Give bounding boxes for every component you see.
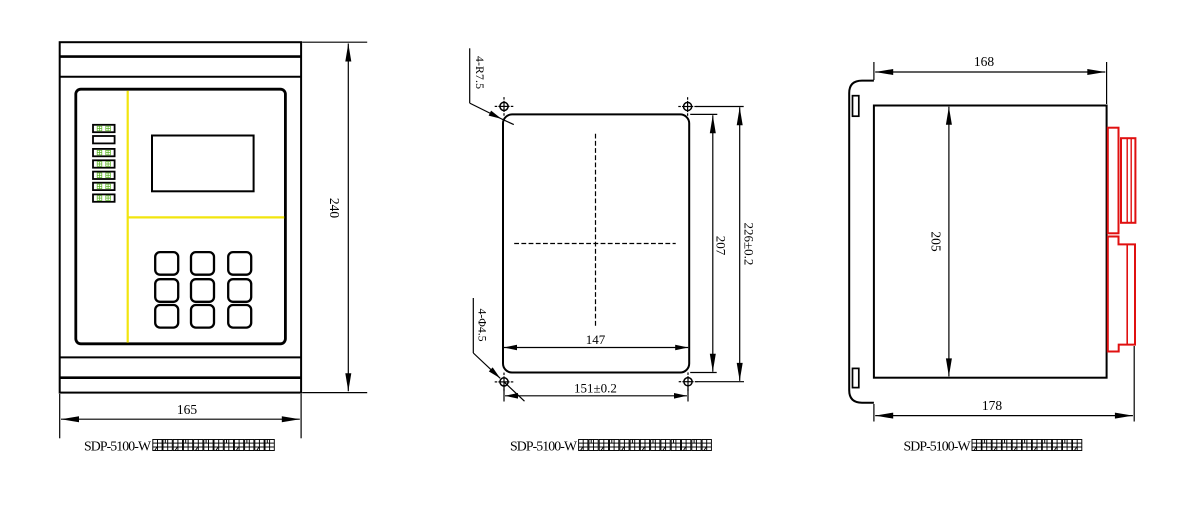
svg-text:147: 147: [586, 332, 606, 347]
svg-text:207: 207: [714, 236, 729, 256]
svg-text:178: 178: [982, 398, 1003, 413]
svg-text:165: 165: [177, 402, 198, 417]
svg-text:SDP-5100-W: SDP-5100-W: [84, 438, 151, 453]
svg-text:4-R7.5: 4-R7.5: [473, 56, 487, 89]
svg-text:SDP-5100-W: SDP-5100-W: [510, 438, 577, 453]
svg-text:151±0.2: 151±0.2: [574, 381, 617, 396]
svg-text:226±0.2: 226±0.2: [742, 223, 757, 266]
svg-text:205: 205: [929, 231, 944, 252]
svg-text:168: 168: [974, 54, 995, 69]
svg-text:4-Φ4.5: 4-Φ4.5: [476, 309, 490, 342]
svg-text:240: 240: [327, 198, 342, 219]
svg-text:SDP-5100-W: SDP-5100-W: [904, 438, 971, 453]
